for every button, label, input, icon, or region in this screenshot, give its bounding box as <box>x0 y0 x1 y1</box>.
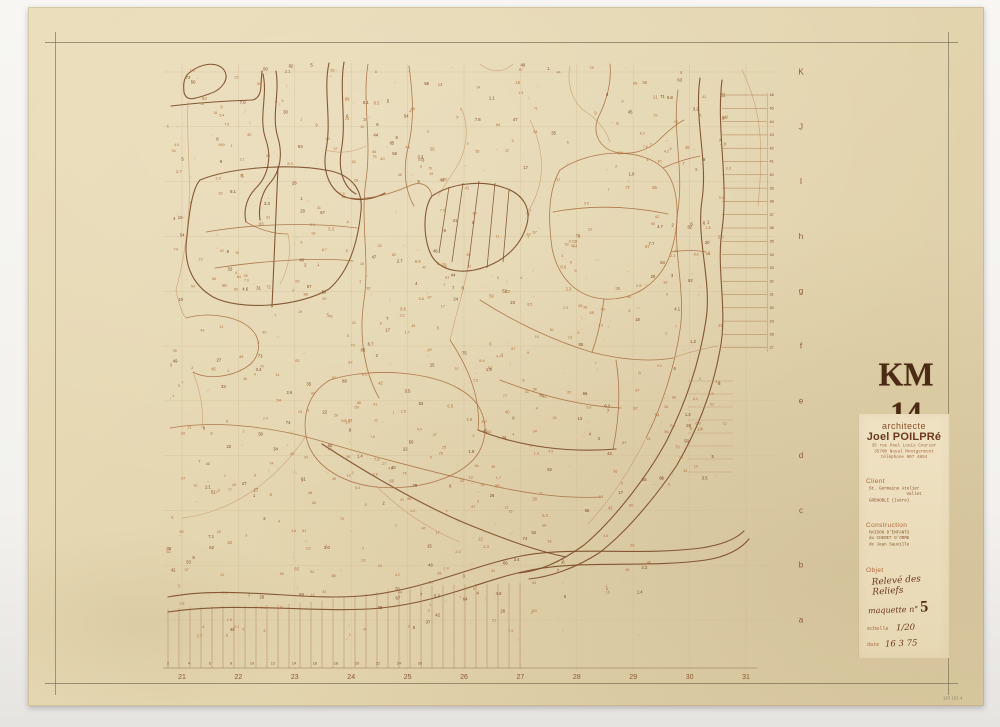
svg-text:2.5: 2.5 <box>401 409 406 414</box>
svg-text:3.3: 3.3 <box>417 155 423 160</box>
svg-text:40: 40 <box>299 258 304 263</box>
svg-text:12: 12 <box>219 325 223 329</box>
svg-text:16: 16 <box>606 590 610 594</box>
svg-text:83: 83 <box>332 376 336 380</box>
svg-text:c: c <box>799 506 803 515</box>
svg-text:86: 86 <box>266 154 270 158</box>
svg-text:76: 76 <box>402 470 407 475</box>
svg-text:d: d <box>799 451 803 460</box>
svg-text:37: 37 <box>333 147 337 151</box>
svg-text:6.5: 6.5 <box>447 404 453 409</box>
svg-text:1.0: 1.0 <box>598 324 603 328</box>
svg-text:8.3: 8.3 <box>640 132 645 136</box>
svg-text:7: 7 <box>198 459 201 464</box>
svg-text:86: 86 <box>613 469 617 473</box>
svg-text:15: 15 <box>427 544 432 549</box>
svg-text:35: 35 <box>551 130 556 135</box>
svg-text:1.9: 1.9 <box>486 367 492 372</box>
svg-text:28: 28 <box>686 423 691 428</box>
construction-lines: MAISON D'ENFANTS du CHERET D'ORME de Jea… <box>869 530 950 548</box>
svg-text:3.5: 3.5 <box>702 476 708 481</box>
svg-text:2.4: 2.4 <box>263 417 268 421</box>
svg-text:4: 4 <box>202 625 204 629</box>
svg-text:33: 33 <box>221 384 226 389</box>
svg-text:27: 27 <box>433 433 437 437</box>
svg-text:3.7: 3.7 <box>197 634 203 639</box>
svg-text:49: 49 <box>422 266 426 270</box>
svg-text:84: 84 <box>578 562 582 566</box>
svg-text:59: 59 <box>489 293 494 298</box>
svg-text:46: 46 <box>428 563 433 568</box>
svg-text:8.1: 8.1 <box>230 189 236 194</box>
svg-text:6.9: 6.9 <box>415 259 421 264</box>
svg-text:5: 5 <box>457 518 459 522</box>
svg-text:44: 44 <box>556 71 560 75</box>
svg-text:89: 89 <box>672 395 676 399</box>
svg-text:45: 45 <box>674 120 678 124</box>
svg-text:3.3: 3.3 <box>310 223 315 227</box>
svg-text:56: 56 <box>585 508 590 513</box>
svg-text:5: 5 <box>300 240 302 244</box>
svg-text:4.7: 4.7 <box>657 224 663 229</box>
svg-text:2: 2 <box>257 340 260 345</box>
svg-text:29: 29 <box>629 674 637 681</box>
svg-text:3: 3 <box>477 499 479 503</box>
svg-text:1.3: 1.3 <box>685 412 691 417</box>
svg-text:16: 16 <box>515 80 520 85</box>
svg-text:47: 47 <box>242 481 247 486</box>
svg-text:1.4: 1.4 <box>443 565 449 570</box>
svg-text:82: 82 <box>687 224 692 229</box>
svg-text:10: 10 <box>360 262 364 266</box>
svg-text:63: 63 <box>341 418 346 423</box>
svg-text:84: 84 <box>475 464 479 468</box>
svg-text:12: 12 <box>505 149 509 153</box>
svg-text:77: 77 <box>503 393 508 398</box>
svg-text:6: 6 <box>270 492 273 497</box>
svg-text:2: 2 <box>167 661 170 666</box>
svg-text:88: 88 <box>303 292 308 297</box>
objet-value: Relevé des Reliefs <box>871 572 949 598</box>
svg-text:8.8: 8.8 <box>373 473 378 477</box>
svg-text:88: 88 <box>542 524 546 528</box>
svg-text:3.2: 3.2 <box>693 106 699 111</box>
svg-text:62: 62 <box>220 249 224 253</box>
svg-text:51: 51 <box>373 154 377 158</box>
svg-text:3.4: 3.4 <box>256 367 262 372</box>
svg-text:23: 23 <box>291 674 299 681</box>
svg-text:20: 20 <box>705 240 710 245</box>
svg-text:28: 28 <box>354 177 358 182</box>
svg-text:6: 6 <box>380 321 382 326</box>
svg-text:73: 73 <box>258 354 263 359</box>
svg-text:8: 8 <box>254 474 256 478</box>
svg-text:5.4: 5.4 <box>693 397 698 401</box>
svg-text:9: 9 <box>280 605 283 610</box>
svg-text:6: 6 <box>264 629 266 633</box>
svg-text:57: 57 <box>455 367 459 371</box>
svg-text:18: 18 <box>635 317 640 322</box>
svg-text:67: 67 <box>533 230 537 235</box>
svg-text:53: 53 <box>532 581 536 585</box>
svg-text:40: 40 <box>247 133 251 137</box>
svg-text:28: 28 <box>573 674 581 681</box>
echelle-row: echelle 1/20 <box>867 623 949 633</box>
svg-text:9: 9 <box>621 99 624 104</box>
svg-text:47: 47 <box>529 444 533 448</box>
svg-text:56: 56 <box>392 151 397 156</box>
svg-text:1: 1 <box>172 393 174 398</box>
svg-text:1: 1 <box>547 66 550 71</box>
svg-text:25: 25 <box>404 674 412 681</box>
svg-text:7.9: 7.9 <box>244 279 249 283</box>
svg-text:43: 43 <box>311 392 315 396</box>
svg-text:71: 71 <box>538 491 543 496</box>
svg-text:7: 7 <box>274 314 276 318</box>
svg-text:72: 72 <box>722 421 727 426</box>
svg-text:7: 7 <box>675 325 677 329</box>
svg-text:5.8: 5.8 <box>667 95 673 100</box>
svg-text:1.4: 1.4 <box>637 589 643 594</box>
svg-text:7.9: 7.9 <box>261 605 267 610</box>
svg-text:7: 7 <box>682 161 685 166</box>
svg-text:7.9: 7.9 <box>189 67 194 72</box>
svg-text:3: 3 <box>467 142 469 146</box>
svg-text:65: 65 <box>294 566 299 571</box>
svg-text:9: 9 <box>222 142 224 147</box>
svg-text:84: 84 <box>618 151 623 156</box>
svg-text:8.5: 8.5 <box>374 100 380 105</box>
svg-text:87: 87 <box>511 347 515 351</box>
svg-text:43: 43 <box>405 144 409 149</box>
svg-text:88: 88 <box>342 378 347 383</box>
svg-text:4: 4 <box>445 263 448 268</box>
svg-text:1.7: 1.7 <box>496 476 501 480</box>
svg-text:2: 2 <box>395 523 397 527</box>
svg-text:21: 21 <box>352 321 356 325</box>
svg-text:2: 2 <box>672 222 675 227</box>
svg-text:3.5: 3.5 <box>305 547 310 551</box>
svg-text:43: 43 <box>770 133 774 137</box>
svg-text:1.2: 1.2 <box>690 339 696 344</box>
svg-text:59: 59 <box>354 405 359 410</box>
svg-text:85: 85 <box>390 141 395 146</box>
svg-text:8.6: 8.6 <box>560 264 566 269</box>
svg-text:35: 35 <box>244 274 248 278</box>
svg-text:7: 7 <box>452 285 455 290</box>
svg-text:52: 52 <box>531 530 536 535</box>
svg-text:9: 9 <box>227 249 230 254</box>
svg-text:80: 80 <box>467 253 471 257</box>
svg-text:47: 47 <box>421 526 426 531</box>
svg-text:17: 17 <box>618 490 623 495</box>
svg-text:30: 30 <box>283 110 288 115</box>
architect-name: Joel POILPRé <box>859 431 949 443</box>
svg-text:5: 5 <box>430 456 432 460</box>
svg-text:25: 25 <box>430 363 435 368</box>
svg-text:7: 7 <box>386 316 389 321</box>
svg-text:5.0: 5.0 <box>718 234 724 239</box>
svg-text:27: 27 <box>382 461 386 466</box>
svg-text:6.1: 6.1 <box>363 100 369 105</box>
svg-text:34: 34 <box>363 628 367 632</box>
svg-text:2: 2 <box>362 546 364 551</box>
svg-text:6: 6 <box>221 105 224 110</box>
svg-text:51: 51 <box>302 529 306 533</box>
svg-text:86: 86 <box>652 185 657 190</box>
svg-text:2: 2 <box>243 429 245 433</box>
svg-text:14: 14 <box>275 373 279 377</box>
svg-text:34: 34 <box>491 569 495 573</box>
svg-text:42: 42 <box>171 568 176 573</box>
svg-text:33: 33 <box>186 560 191 565</box>
date-row: date 16 3 75 <box>867 639 949 649</box>
maquette-row: maquette n° 5 <box>868 598 950 619</box>
svg-text:2: 2 <box>218 487 221 492</box>
svg-text:3: 3 <box>301 478 303 483</box>
svg-text:5.6: 5.6 <box>586 405 591 409</box>
svg-text:78: 78 <box>576 234 581 239</box>
svg-text:13: 13 <box>577 416 582 421</box>
svg-text:28: 28 <box>552 416 556 420</box>
svg-text:25: 25 <box>439 451 444 456</box>
svg-text:37: 37 <box>556 178 560 182</box>
svg-text:38: 38 <box>378 605 383 610</box>
svg-text:5: 5 <box>456 114 459 119</box>
svg-text:4: 4 <box>346 220 349 225</box>
svg-text:6: 6 <box>203 426 206 431</box>
svg-text:7.8: 7.8 <box>475 117 481 122</box>
svg-text:4: 4 <box>646 158 648 162</box>
svg-text:2.9: 2.9 <box>467 417 473 422</box>
svg-text:25: 25 <box>234 76 238 80</box>
svg-text:52: 52 <box>219 191 223 195</box>
svg-text:85: 85 <box>411 106 416 111</box>
svg-text:37: 37 <box>426 620 431 625</box>
svg-text:88: 88 <box>206 462 210 466</box>
svg-text:7: 7 <box>420 592 423 597</box>
svg-text:89: 89 <box>345 97 350 102</box>
svg-text:28: 28 <box>292 181 297 186</box>
svg-text:41: 41 <box>770 160 774 164</box>
svg-text:1.4: 1.4 <box>697 426 703 431</box>
svg-text:18: 18 <box>213 111 217 115</box>
svg-text:40: 40 <box>505 409 510 414</box>
svg-text:7: 7 <box>627 186 629 190</box>
svg-text:43: 43 <box>608 506 613 511</box>
svg-text:17: 17 <box>385 328 390 333</box>
svg-text:8.4: 8.4 <box>479 358 485 363</box>
svg-text:25: 25 <box>232 483 236 487</box>
title-block: architecte Joel POILPRé 35 rue Paul Loui… <box>858 414 950 658</box>
svg-text:8.7: 8.7 <box>322 248 327 252</box>
svg-text:42: 42 <box>607 451 612 456</box>
svg-text:86: 86 <box>723 115 728 120</box>
svg-text:3: 3 <box>226 632 229 637</box>
date-label: date <box>867 642 879 648</box>
svg-text:9: 9 <box>616 121 619 126</box>
client-lines: St. Germaine Atelier Vallet GRENOBLE (Is… <box>869 486 950 504</box>
svg-text:1: 1 <box>253 493 256 498</box>
svg-text:45: 45 <box>628 109 633 114</box>
svg-text:17: 17 <box>441 304 446 309</box>
svg-text:6: 6 <box>497 276 499 280</box>
svg-text:39: 39 <box>366 286 370 290</box>
svg-text:44: 44 <box>451 272 456 277</box>
svg-text:33: 33 <box>361 559 365 563</box>
svg-text:3.8: 3.8 <box>291 529 296 533</box>
svg-text:1.8: 1.8 <box>227 618 232 622</box>
svg-text:40: 40 <box>481 483 485 487</box>
svg-text:9: 9 <box>427 130 429 134</box>
svg-text:53: 53 <box>419 401 424 406</box>
svg-text:21: 21 <box>653 95 658 100</box>
svg-text:45: 45 <box>411 324 415 328</box>
svg-text:49: 49 <box>239 354 243 359</box>
svg-text:26: 26 <box>490 493 495 498</box>
svg-text:72: 72 <box>186 75 191 80</box>
svg-text:5: 5 <box>437 326 440 331</box>
svg-text:f: f <box>800 342 803 351</box>
svg-text:6: 6 <box>449 483 452 488</box>
svg-text:3: 3 <box>210 431 213 436</box>
svg-text:8: 8 <box>718 381 721 386</box>
svg-text:40: 40 <box>391 465 396 470</box>
svg-text:2: 2 <box>349 633 351 637</box>
svg-text:36: 36 <box>243 377 247 381</box>
svg-text:4: 4 <box>317 264 319 268</box>
svg-text:11: 11 <box>496 235 500 239</box>
svg-text:4.6: 4.6 <box>496 591 502 596</box>
svg-text:20: 20 <box>322 297 326 301</box>
architect-address: 35 rue Paul Louis Courier 35700 Noyal Mo… <box>859 443 950 460</box>
svg-text:a: a <box>799 616 804 625</box>
svg-text:4.5: 4.5 <box>603 534 608 538</box>
svg-text:9: 9 <box>444 228 447 233</box>
svg-text:2.3: 2.3 <box>455 549 461 554</box>
svg-text:4.5: 4.5 <box>548 449 553 453</box>
svg-text:4: 4 <box>520 275 523 280</box>
svg-text:52: 52 <box>209 545 214 550</box>
svg-text:29: 29 <box>526 231 531 236</box>
svg-text:5: 5 <box>675 249 677 253</box>
svg-text:41: 41 <box>542 394 547 399</box>
svg-text:76: 76 <box>235 251 239 255</box>
svg-text:13: 13 <box>568 335 572 340</box>
svg-text:86: 86 <box>257 82 261 86</box>
svg-text:24: 24 <box>347 674 355 681</box>
svg-text:21: 21 <box>187 425 191 429</box>
svg-text:32: 32 <box>377 243 382 248</box>
svg-text:1: 1 <box>227 369 229 373</box>
svg-text:62: 62 <box>688 278 693 283</box>
svg-text:25: 25 <box>173 349 177 353</box>
svg-text:8.3: 8.3 <box>542 513 548 518</box>
svg-text:69: 69 <box>295 280 299 284</box>
svg-text:65: 65 <box>590 310 595 315</box>
svg-text:54: 54 <box>660 260 665 265</box>
svg-text:1: 1 <box>392 411 394 415</box>
svg-text:14: 14 <box>220 573 224 577</box>
svg-text:6: 6 <box>673 366 676 371</box>
svg-text:84: 84 <box>237 274 242 279</box>
svg-text:7: 7 <box>443 283 445 287</box>
svg-text:6: 6 <box>680 70 683 75</box>
svg-text:22: 22 <box>403 447 408 452</box>
svg-text:50: 50 <box>263 66 268 71</box>
svg-text:60: 60 <box>290 452 294 456</box>
svg-text:3.9: 3.9 <box>584 202 589 206</box>
svg-text:3.6: 3.6 <box>418 296 424 301</box>
svg-text:30: 30 <box>770 306 774 310</box>
svg-text:6.0: 6.0 <box>695 421 701 426</box>
svg-text:71: 71 <box>534 107 538 111</box>
svg-text:40: 40 <box>360 125 364 129</box>
svg-text:66: 66 <box>503 561 508 566</box>
svg-text:68: 68 <box>642 80 647 85</box>
svg-text:89: 89 <box>262 331 266 335</box>
svg-text:44: 44 <box>373 132 378 137</box>
svg-text:22: 22 <box>322 409 327 414</box>
svg-text:7.9: 7.9 <box>508 628 513 633</box>
svg-text:80: 80 <box>259 222 264 227</box>
svg-text:83: 83 <box>322 590 326 594</box>
svg-text:80: 80 <box>389 478 394 483</box>
svg-text:88: 88 <box>331 573 336 578</box>
svg-text:49: 49 <box>429 172 433 176</box>
svg-text:70: 70 <box>351 344 355 348</box>
svg-text:3.3: 3.3 <box>725 166 731 171</box>
svg-text:87: 87 <box>348 359 352 364</box>
svg-text:62: 62 <box>655 214 660 219</box>
svg-text:2.7: 2.7 <box>176 169 182 174</box>
svg-text:32: 32 <box>228 267 233 272</box>
svg-text:1: 1 <box>429 603 431 607</box>
svg-text:5: 5 <box>310 62 313 67</box>
svg-text:9: 9 <box>472 434 474 438</box>
svg-text:16: 16 <box>509 510 513 514</box>
svg-text:64: 64 <box>378 564 382 568</box>
svg-text:9.0: 9.0 <box>569 238 575 243</box>
svg-text:7: 7 <box>595 361 597 365</box>
svg-text:68: 68 <box>533 388 537 392</box>
axis-labels: 2122232425262728293031KJIhgfedcba <box>178 68 804 682</box>
svg-text:60: 60 <box>234 287 239 292</box>
svg-text:52: 52 <box>721 93 726 98</box>
svg-text:4.4: 4.4 <box>417 427 422 431</box>
svg-text:83: 83 <box>583 305 587 309</box>
svg-text:47: 47 <box>513 117 518 122</box>
svg-text:3: 3 <box>463 574 466 579</box>
svg-text:38: 38 <box>770 200 774 204</box>
svg-text:1.8: 1.8 <box>179 601 184 605</box>
svg-text:8.7: 8.7 <box>482 419 487 424</box>
svg-text:46: 46 <box>770 93 774 97</box>
svg-text:6.7: 6.7 <box>368 342 374 347</box>
svg-text:83: 83 <box>330 69 334 73</box>
svg-text:8: 8 <box>216 137 219 142</box>
svg-text:74: 74 <box>286 420 291 425</box>
svg-text:58: 58 <box>642 477 647 482</box>
svg-text:56: 56 <box>651 222 655 226</box>
svg-text:72: 72 <box>266 285 271 290</box>
svg-text:43: 43 <box>200 329 204 333</box>
svg-text:1.2: 1.2 <box>410 509 415 513</box>
svg-text:3: 3 <box>598 436 601 441</box>
svg-text:31: 31 <box>525 390 529 394</box>
svg-text:36: 36 <box>770 226 774 230</box>
svg-text:5: 5 <box>512 139 514 143</box>
